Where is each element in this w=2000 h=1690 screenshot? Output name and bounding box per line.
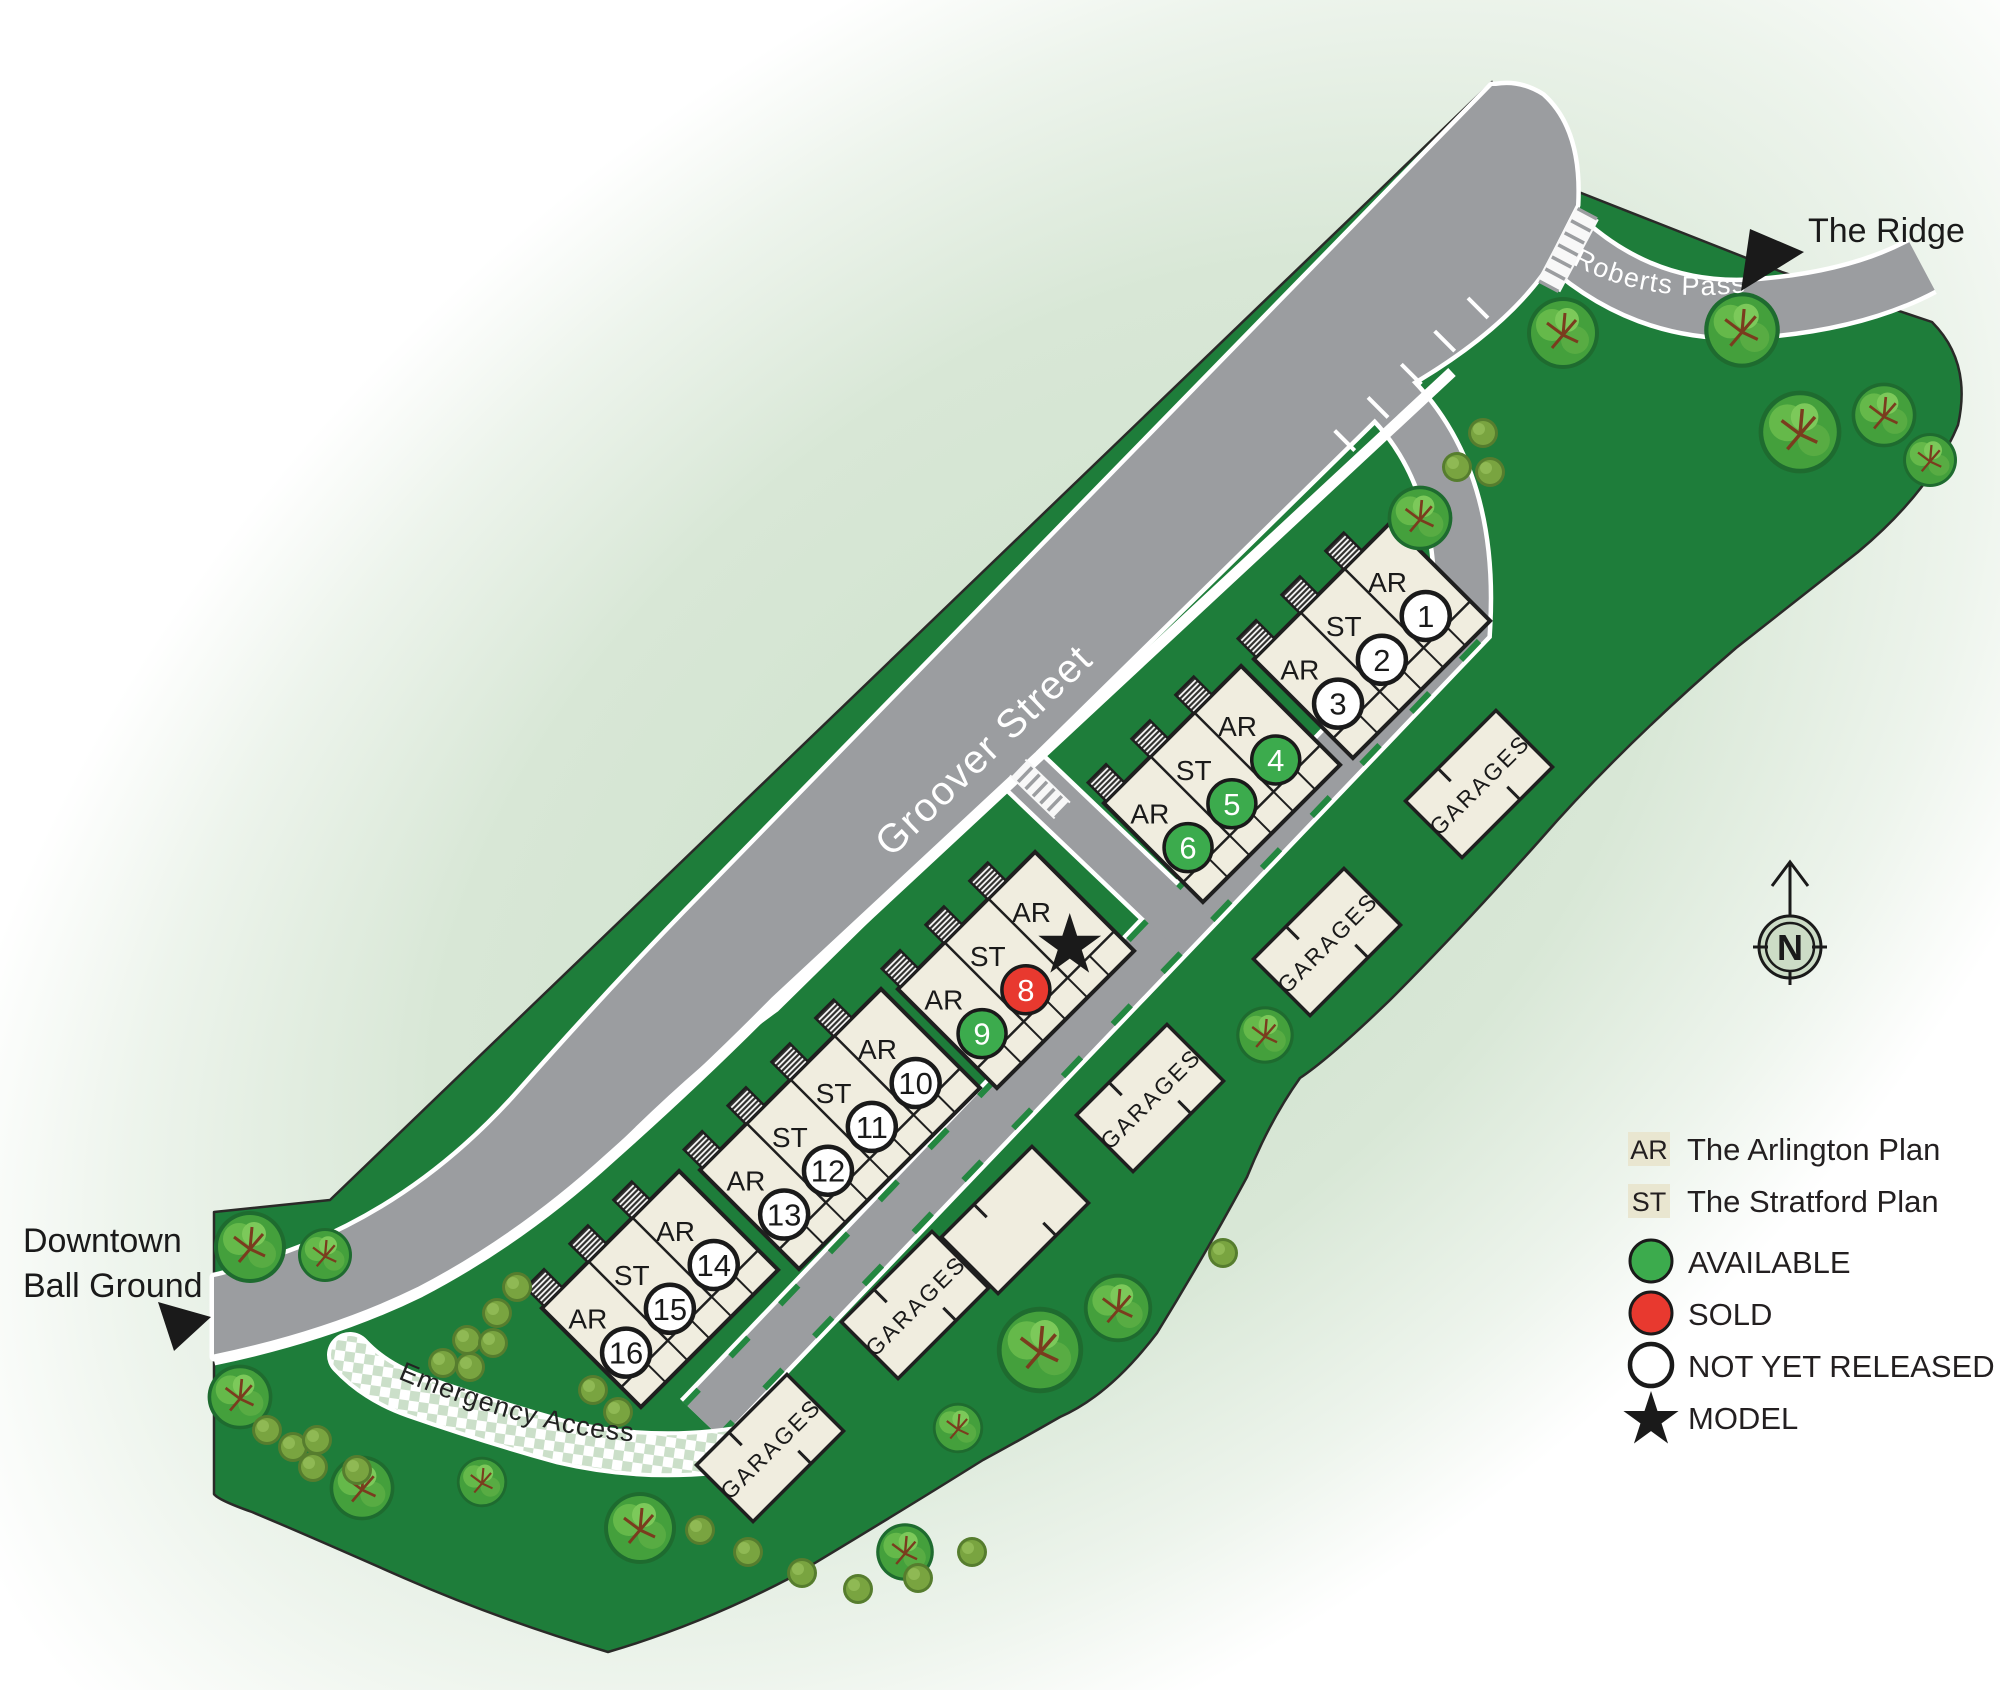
model-star-icon <box>1623 1391 1678 1443</box>
unit-number: 4 <box>1267 743 1284 778</box>
legend-not-released-label: NOT YET RELEASED <box>1688 1349 1995 1384</box>
legend-status-model: MODEL <box>1623 1391 1798 1443</box>
tree-icon <box>298 1228 352 1282</box>
unit-number: 3 <box>1329 687 1346 722</box>
legend-sold-label: SOLD <box>1688 1297 1772 1332</box>
legend-status-sold: SOLD <box>1630 1292 1772 1334</box>
tree-icon <box>1852 383 1917 448</box>
tree-icon <box>1527 297 1599 369</box>
unit-number: 16 <box>609 1336 643 1371</box>
unit-number: 9 <box>973 1017 990 1052</box>
unit-number: 1 <box>1417 599 1434 634</box>
unit-plan-label: AR <box>858 1034 897 1065</box>
legend-ar-badge: AR <box>1630 1135 1668 1165</box>
tree-icon <box>457 1457 507 1507</box>
site-plan-page: GARAGESGARAGESGARAGESGARAGESGARAGES AR1S… <box>0 0 2000 1690</box>
tree-icon <box>933 1403 983 1453</box>
tree-icon <box>997 1307 1083 1393</box>
unit-number: 6 <box>1179 831 1196 866</box>
bush-icon <box>903 1563 933 1593</box>
tree-icon <box>604 1492 676 1564</box>
unit-plan-label: ST <box>1326 611 1362 642</box>
tree-icon <box>214 1211 286 1283</box>
unit-number: 5 <box>1223 787 1240 822</box>
unit-plan-label: AR <box>656 1216 695 1247</box>
unit-plan-label: ST <box>772 1122 808 1153</box>
unit-plan-label: AR <box>1368 567 1407 598</box>
bush-icon <box>482 1298 512 1328</box>
bush-icon <box>733 1537 763 1567</box>
bush-icon <box>957 1537 987 1567</box>
legend-status-available: AVAILABLE <box>1630 1240 1851 1282</box>
bush-icon <box>578 1375 608 1405</box>
unit-plan-label: AR <box>1130 799 1169 830</box>
tree-icon <box>1236 1006 1294 1064</box>
unit-plan-label: ST <box>1176 755 1212 786</box>
community-site-map: GARAGESGARAGESGARAGESGARAGESGARAGES AR1S… <box>0 0 2000 1690</box>
bush-icon <box>1208 1238 1238 1268</box>
bush-icon <box>452 1325 482 1355</box>
bush-icon <box>843 1574 873 1604</box>
unit-plan-label: AR <box>1218 711 1257 742</box>
bush-icon <box>302 1425 332 1455</box>
bush-icon <box>502 1272 532 1302</box>
tree-icon <box>1704 292 1780 368</box>
downtown-label-line1: Downtown <box>23 1222 182 1260</box>
tree-icon <box>1759 391 1842 474</box>
legend-status-not-released: NOT YET RELEASED <box>1630 1344 1995 1386</box>
unit-number: 11 <box>856 1110 888 1145</box>
bush-icon <box>685 1515 715 1545</box>
unit-plan-label: ST <box>816 1078 852 1109</box>
bush-icon <box>252 1415 282 1445</box>
unit-number: 15 <box>653 1292 687 1327</box>
unit-number: 14 <box>696 1248 730 1283</box>
unit-plan-label: ST <box>614 1260 650 1291</box>
bush-icon <box>1475 457 1505 487</box>
bush-icon <box>1442 452 1472 482</box>
unit-plan-label: AR <box>1280 655 1319 686</box>
bush-icon <box>1468 418 1498 448</box>
legend-available-label: AVAILABLE <box>1688 1245 1851 1280</box>
legend-model-label: MODEL <box>1688 1401 1798 1436</box>
bush-icon <box>342 1455 372 1485</box>
unit-plan-label: AR <box>924 985 963 1016</box>
unit-plan-label: AR <box>727 1166 766 1197</box>
the-ridge-label: The Ridge <box>1808 212 1965 250</box>
unit-number: 13 <box>767 1198 801 1233</box>
legend-st-label: The Stratford Plan <box>1687 1184 1939 1219</box>
unit-number: 10 <box>898 1066 932 1101</box>
unit-plan-label: AR <box>1012 897 1051 928</box>
bush-icon <box>298 1452 328 1482</box>
unit-number: 8 <box>1017 973 1034 1008</box>
tree-icon <box>1903 433 1957 487</box>
unit-plan-label: AR <box>568 1304 607 1335</box>
bush-icon <box>478 1328 508 1358</box>
downtown-label-line2: Ball Ground <box>23 1267 203 1305</box>
tree-icon <box>1084 1274 1152 1342</box>
legend-ar-label: The Arlington Plan <box>1687 1132 1940 1167</box>
legend-st-badge: ST <box>1632 1187 1667 1217</box>
unit-number: 12 <box>811 1154 845 1189</box>
unit-number: 2 <box>1373 643 1390 678</box>
bush-icon <box>787 1558 817 1588</box>
tree-icon <box>1388 486 1453 551</box>
compass-n-label: N <box>1777 927 1803 968</box>
unit-plan-label: ST <box>970 941 1006 972</box>
